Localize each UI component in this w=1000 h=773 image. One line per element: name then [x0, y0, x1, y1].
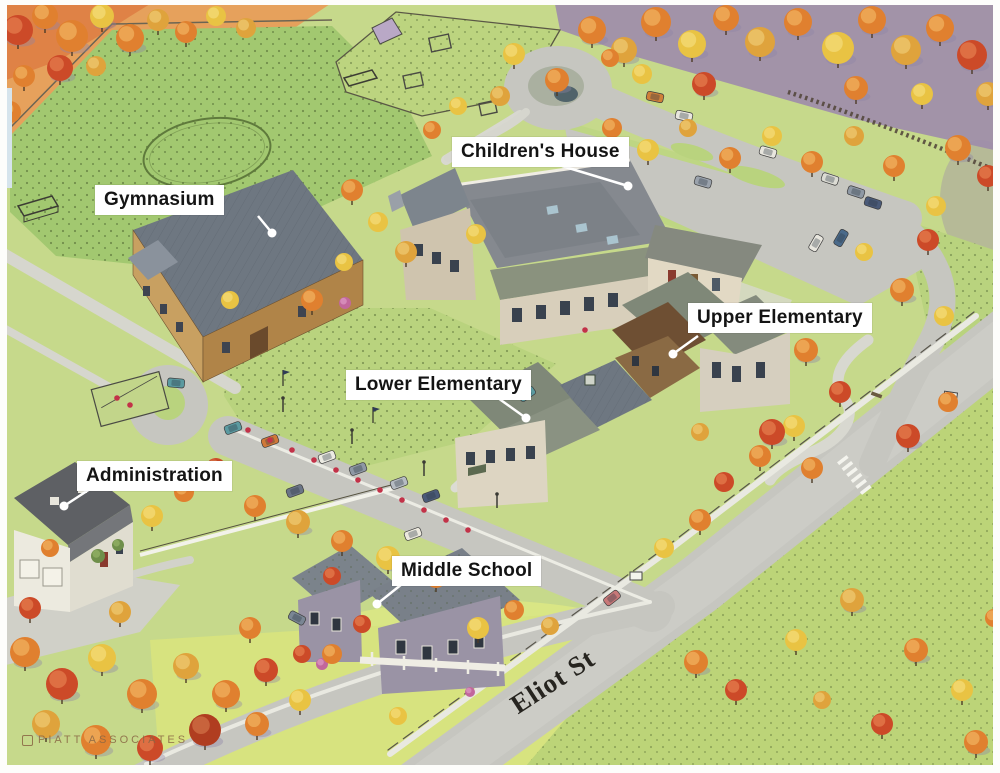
campus-map: Gymnasium Children's House Upper Element…	[0, 0, 1000, 773]
label-gymnasium: Gymnasium	[95, 185, 224, 215]
label-administration: Administration	[77, 461, 232, 491]
artist-credit-text: PIATT ASSOCIATES	[38, 735, 188, 746]
label-upper-elementary: Upper Elementary	[688, 303, 872, 333]
label-childrens-house: Children's House	[452, 137, 629, 167]
label-lower-elementary: Lower Elementary	[346, 370, 531, 400]
artist-credit: PIATT ASSOCIATES	[22, 735, 188, 746]
label-middle-school: Middle School	[392, 556, 541, 586]
signature-logo-mark	[22, 735, 33, 746]
